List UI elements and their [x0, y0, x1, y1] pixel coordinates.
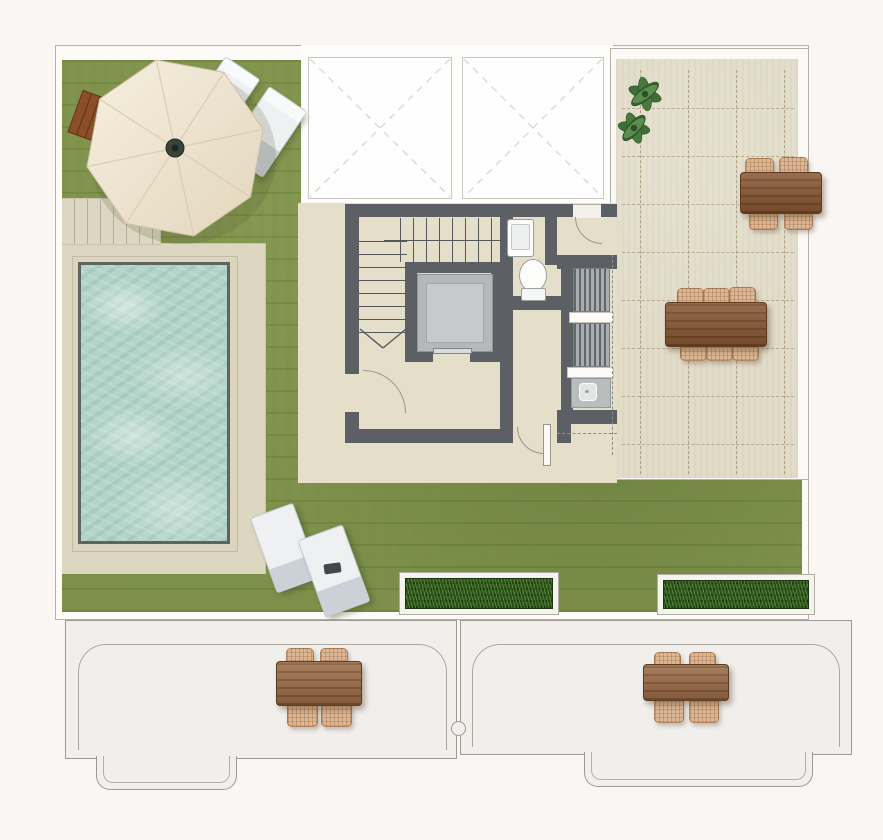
stair-direction-arrow-icon: [359, 328, 407, 350]
tile-grid-line: [622, 396, 794, 397]
toilet-tank: [521, 288, 546, 301]
skylight-cross-left-icon: [309, 58, 451, 198]
lower-terrace-left-step-inner: [103, 756, 230, 783]
wall-kitchen-top: [557, 255, 617, 269]
skylight-cross-right-icon: [463, 58, 603, 198]
floor-plan-canvas: [0, 0, 883, 840]
dashed-boundary-vertical: [612, 255, 613, 455]
parasol-icon: [60, 45, 295, 260]
potted-plants-icon: [612, 58, 678, 154]
tile-grid-line: [622, 252, 794, 253]
towel-bag: [323, 562, 341, 574]
lower-terrace-left-inner-wall: [78, 644, 447, 750]
counter-shelf-2: [567, 367, 614, 378]
louvered-unit-2: [573, 323, 610, 367]
louvered-unit-1: [573, 268, 610, 312]
wall-kitchen-corner: [557, 410, 571, 443]
stair-lower-run: [359, 241, 407, 333]
wall-wc-right: [545, 217, 557, 265]
planter-plants-right: [663, 580, 809, 609]
wall-left: [345, 204, 359, 374]
planter-plants-left: [405, 578, 553, 609]
tile-grid-line: [622, 444, 794, 445]
dining-table-4: [740, 172, 822, 214]
stair-rail-line: [384, 240, 500, 241]
elevator-wall-top: [405, 262, 503, 273]
hand-basin-bowl: [511, 224, 530, 250]
lower-table-left: [276, 661, 362, 706]
elevator-wall-bottom-right: [470, 351, 503, 362]
lower-table-right: [643, 664, 729, 701]
lower-terrace-right-step-inner: [591, 752, 806, 780]
kitchen-sink-drain: [585, 390, 589, 393]
swimming-pool: [81, 265, 227, 541]
door-opening-top: [573, 204, 601, 218]
door-leaf-core-exit: [543, 424, 551, 466]
elevator-platform: [426, 283, 484, 343]
elevator-door-sill: [433, 348, 472, 354]
drain-pipe: [451, 721, 466, 736]
tile-grid-line: [622, 156, 794, 157]
tile-grid-line: [688, 70, 689, 474]
tile-grid-line: [736, 70, 737, 474]
wall-bottom: [345, 429, 513, 443]
dashed-boundary-horizontal: [557, 433, 617, 434]
dining-table-6: [665, 302, 767, 347]
counter-shelf-1: [569, 312, 614, 323]
elevator-wall-bottom-left: [405, 351, 433, 362]
tile-grid-line: [784, 70, 785, 474]
